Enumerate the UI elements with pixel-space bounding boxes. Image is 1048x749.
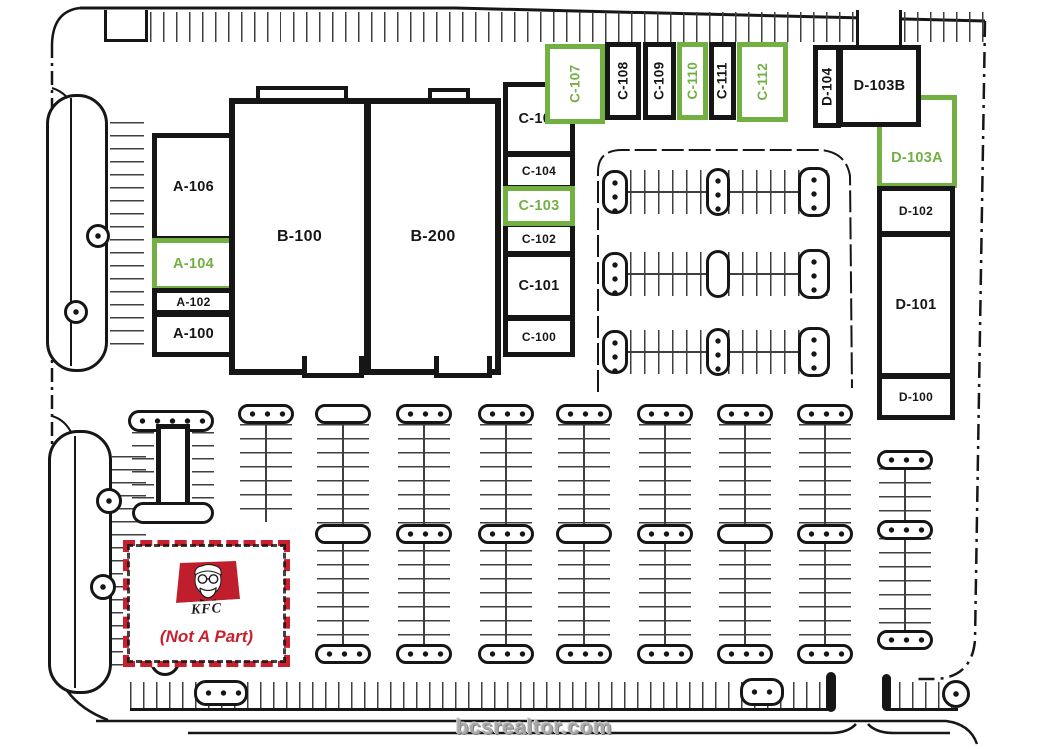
kfc-parcel: KFC (Not A Part) (123, 540, 290, 667)
landscape-island (637, 644, 693, 664)
landscape-island (717, 644, 773, 664)
landscape-island (132, 502, 214, 524)
unit-a-104: A-104 (152, 238, 235, 291)
landscape-island (238, 404, 294, 424)
landscape-island (798, 327, 830, 377)
entry-notch (302, 356, 364, 378)
unit-c-108: C-108 (605, 42, 641, 120)
landscape-island (478, 404, 534, 424)
tree-island (96, 488, 122, 514)
unit-c-100: C-100 (503, 316, 575, 357)
parking-row-left (110, 122, 144, 352)
lane-line (74, 436, 76, 688)
watermark: bcsrealtor.com (404, 716, 664, 740)
landscape-island (798, 249, 830, 299)
kfc-note: (Not A Part) (160, 627, 253, 647)
unit-d-101: D-101 (877, 232, 955, 378)
landscape-island (396, 644, 452, 664)
landscape-island (706, 168, 730, 216)
landscape-island (556, 404, 612, 424)
unit-c-104: C-104 (503, 152, 575, 190)
unit-d-103b: D-103B (838, 45, 921, 127)
driveway-gap (281, 12, 293, 43)
landscape-island (602, 170, 628, 214)
site-plan: A-106 A-104 A-102 A-100 B-100 B-200 C-10… (0, 0, 1048, 749)
unit-c-111: C-111 (709, 42, 736, 120)
unit-c-112: C-112 (737, 42, 788, 122)
landscape-island (556, 644, 612, 664)
unit-c-110: C-110 (677, 42, 708, 120)
unit-a-106: A-106 (152, 133, 235, 241)
tree-island (90, 574, 116, 600)
landscape-island (194, 680, 248, 706)
parking-row (132, 432, 154, 506)
unit-d-102: D-102 (877, 186, 955, 236)
landscape-island (602, 330, 628, 374)
tree-island (86, 224, 110, 248)
curb-end (826, 672, 836, 712)
unit-c-102: C-102 (503, 222, 575, 256)
entry-notch (434, 356, 492, 378)
landscape-island (556, 524, 612, 544)
kfc-logo: KFC (164, 561, 250, 625)
landscape-island (877, 520, 933, 540)
parking-median (48, 430, 112, 694)
landscape-island (315, 644, 371, 664)
unit-d-100: D-100 (877, 374, 955, 420)
unit-a-102: A-102 (152, 288, 235, 315)
curb-end (882, 674, 891, 711)
landscape-island (602, 252, 628, 296)
parking-row (192, 432, 214, 506)
parking-row (240, 424, 292, 522)
landscape-island (797, 644, 853, 664)
landscape-island (315, 404, 371, 424)
unit-b-200: B-200 (365, 98, 501, 375)
unit-c-103: C-103 (503, 186, 575, 226)
unit-a-100: A-100 (152, 312, 235, 357)
landscape-island (740, 678, 784, 706)
landscape-island (797, 404, 853, 424)
landscape-island (798, 167, 830, 217)
unit-c-107: C-107 (545, 44, 605, 124)
parking-row (879, 468, 931, 636)
landscape-island (877, 450, 933, 470)
landscape-island (478, 524, 534, 544)
landscape-island (315, 524, 371, 544)
unit-c-109: C-109 (643, 42, 676, 120)
parking-median (156, 424, 190, 512)
landscape-island (396, 524, 452, 544)
landscape-island (717, 404, 773, 424)
lane-line (70, 98, 72, 366)
landscape-island (396, 404, 452, 424)
landscape-island (637, 404, 693, 424)
landscape-island (706, 250, 730, 298)
landscape-island (877, 630, 933, 650)
landscape-island (717, 524, 773, 544)
tree-island (64, 300, 88, 324)
curb-notch (104, 10, 148, 42)
landscape-island (637, 524, 693, 544)
landscape-island (478, 644, 534, 664)
kfc-brand: KFC (189, 601, 222, 618)
unit-b-100: B-100 (229, 98, 370, 375)
unit-c-101: C-101 (503, 252, 575, 320)
unit-d-104: D-104 (813, 45, 841, 128)
landscape-island (706, 328, 730, 376)
landscape-island (797, 524, 853, 544)
tree-island (942, 680, 970, 708)
